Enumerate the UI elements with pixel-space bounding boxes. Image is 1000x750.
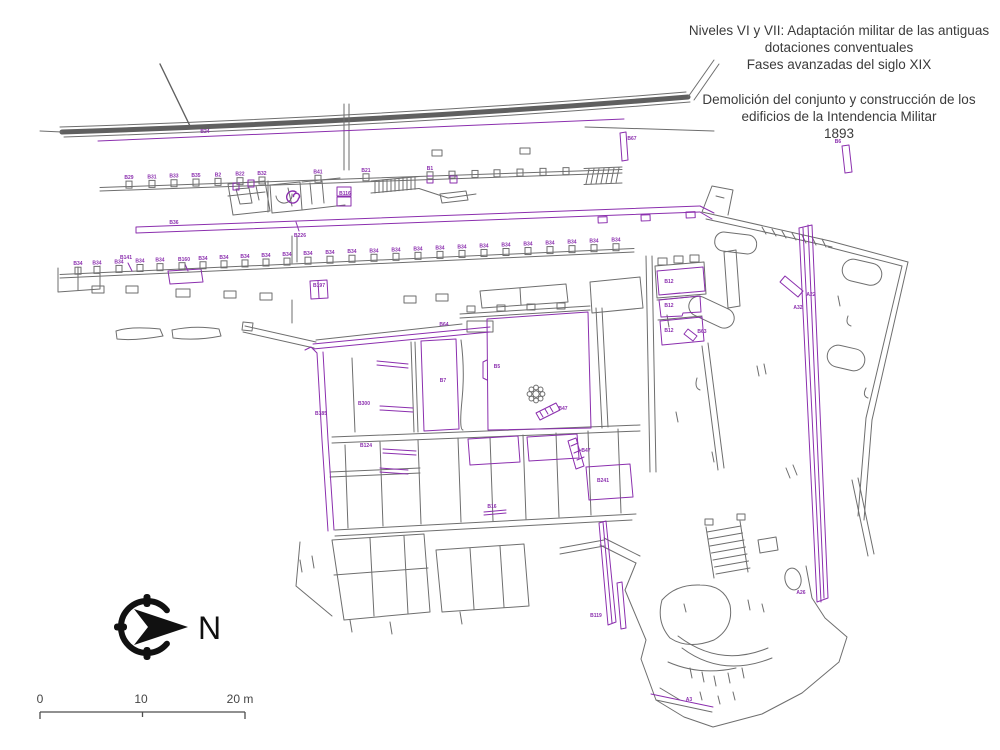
plan-label: B300 (358, 401, 370, 407)
compass-tick-north (144, 594, 151, 607)
north-arrow: N (114, 594, 221, 660)
pier-square (215, 178, 221, 185)
wall-strips-A32 (799, 225, 828, 602)
plan-label: B34 (501, 243, 510, 249)
pier-B6 (842, 145, 852, 173)
plan-label: B34 (325, 250, 334, 256)
plan-label: B67 (627, 136, 636, 142)
room-B7 (421, 339, 459, 431)
city-wall-band (40, 60, 719, 137)
plan-label: B33 (169, 174, 178, 180)
plan-label: B34 (73, 261, 82, 267)
plan-label: B34 (479, 243, 488, 249)
plan-label: B141 (120, 255, 132, 261)
north-label: N (198, 610, 221, 646)
plan-label: B34 (567, 240, 576, 246)
plan-sheet: Niveles VI y VII: Adaptación militar de … (0, 0, 1000, 750)
plan-label: B34 (303, 251, 312, 257)
well-rosette (527, 385, 545, 403)
plan-label: B16 (487, 504, 496, 510)
room-B241 (586, 464, 633, 500)
plan-label: B12 (664, 303, 673, 309)
plan-label: B119 (590, 613, 602, 619)
wall-B119 (599, 521, 616, 625)
scale-bar-line (40, 712, 245, 719)
compass-tick-west (114, 624, 127, 631)
plan-label: B34 (391, 247, 400, 253)
plan-label: B34 (261, 253, 270, 259)
plan-label: B35 (191, 173, 200, 179)
plan-label: B47 (558, 406, 567, 412)
plan-label: B34 (523, 242, 532, 248)
plan-label: B34 (347, 249, 356, 255)
bastion (600, 478, 874, 727)
plan-label: B34 (240, 254, 249, 260)
scale-tick-20: 20 m (227, 692, 254, 706)
plan-label: B2 (215, 172, 222, 178)
plan-label: B29 (124, 175, 133, 181)
plan-label: B34 (155, 258, 164, 264)
plan-label: B34 (589, 239, 598, 245)
pier-square (259, 177, 265, 184)
plan-svg: B29B31B33B35B2B22B32B41B21B1B34B34B34B34… (0, 0, 1000, 750)
pier-square (363, 174, 369, 181)
plan-label: B116 (339, 191, 351, 197)
plan-label: B6 (835, 139, 842, 145)
pier-square (427, 172, 433, 179)
staircase (371, 177, 476, 204)
plan-label: B21 (361, 168, 370, 174)
plan-label: B197 (313, 283, 325, 289)
plan-label: B5 (494, 364, 501, 370)
plan-label: B34 (435, 245, 444, 251)
plan-label: B160 (178, 257, 190, 263)
feature-B47-a (536, 403, 560, 420)
wall-B185 (305, 347, 334, 531)
wall-band-B36 (136, 206, 714, 233)
scale-tick-0: 0 (37, 692, 44, 706)
scale-bar: 0 10 20 m (37, 692, 254, 719)
spiral-stair-symbol (287, 191, 300, 203)
plan-label: A3 (686, 697, 693, 703)
plan-label: B34 (282, 252, 291, 258)
plan-label: B32 (257, 171, 266, 177)
plan-label: B63 (697, 329, 706, 335)
plan-label: B12 (664, 328, 673, 334)
plan-label: B22 (235, 172, 244, 178)
pier-square (149, 180, 155, 187)
feature-A22 (780, 276, 803, 297)
plan-label: B24 (200, 129, 209, 135)
south-rooms (296, 534, 604, 634)
plan-label: B12 (664, 279, 673, 285)
plan-label: B34 (611, 238, 620, 244)
plan-label: B34 (457, 244, 466, 250)
plan-label: A26 (796, 590, 805, 596)
compass-tick-south (144, 647, 151, 660)
pier-square (171, 180, 177, 187)
plan-label: B185 (315, 411, 327, 417)
plan-label: B41 (313, 169, 322, 175)
plan-label: B36 (169, 220, 178, 226)
feature-B63 (684, 329, 697, 341)
plan-label: B7 (440, 378, 447, 384)
plan-label: B34 (135, 259, 144, 265)
compass-arrow (134, 609, 188, 645)
plan-label: B64 (439, 322, 448, 328)
row2-specials (128, 263, 328, 299)
central-block (316, 303, 640, 536)
pier-square (193, 179, 199, 186)
plan-label: B226 (294, 233, 306, 239)
pier-square (472, 170, 478, 177)
plan-label: A22 (806, 292, 815, 298)
plan-label: B31 (147, 174, 156, 180)
plan-label: B34 (198, 256, 207, 262)
plan-label: B124 (360, 443, 372, 449)
stone-fragments (116, 322, 316, 348)
plan-label: B34 (413, 246, 422, 252)
plan-label: B1 (427, 166, 434, 172)
plan-label: A32 (793, 305, 802, 311)
plan-label: B241 (597, 478, 609, 484)
plan-label: B34 (545, 241, 554, 247)
plan-label: B34 (219, 255, 228, 261)
plan-label: B34 (92, 260, 101, 266)
plan-label: B47 (581, 448, 590, 454)
scale-tick-10: 10 (134, 692, 148, 706)
plan-label: B34 (369, 248, 378, 254)
pier-square (315, 175, 321, 182)
right-wing (646, 186, 908, 520)
